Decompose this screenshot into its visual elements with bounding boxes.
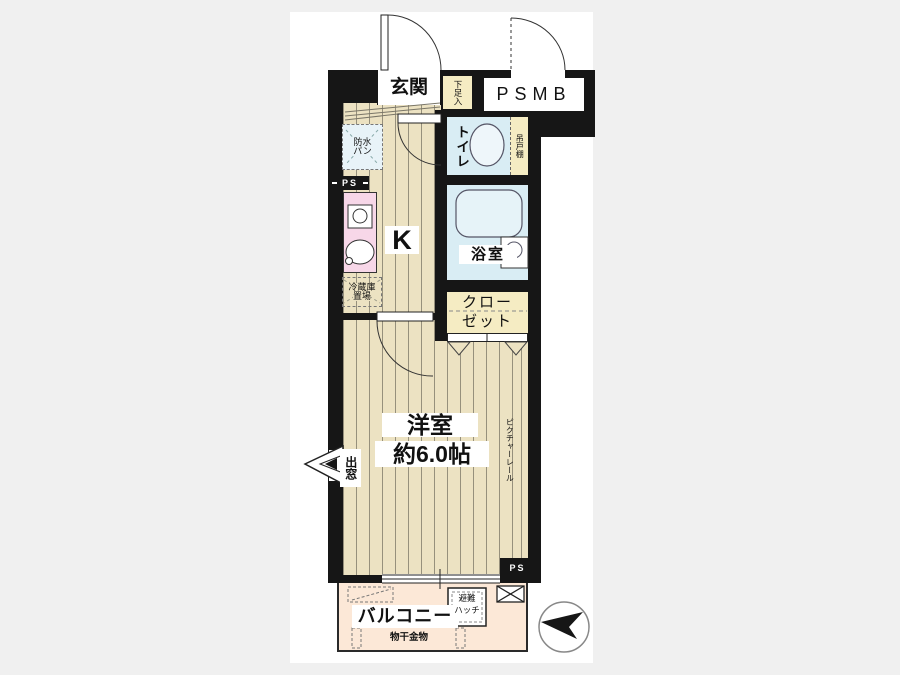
wall-mid-vertical	[435, 110, 447, 341]
kitchen-counter	[343, 192, 377, 273]
wall-k-room-left	[328, 313, 377, 320]
label-waterproof-pan: 防水 パン	[343, 133, 382, 161]
label-kitchen: K	[385, 226, 419, 254]
label-closet-line2: ゼット	[447, 313, 528, 330]
label-fridge-space: 冷蔵庫 置場	[343, 280, 381, 304]
label-bath: 浴室	[459, 245, 517, 264]
kitchen-floor	[343, 103, 441, 577]
label-hatch-line1: 避難	[449, 593, 485, 604]
bath-floor	[447, 185, 528, 280]
wall-bottom-left	[328, 575, 382, 583]
label-fridge-line2: 置場	[353, 292, 371, 301]
label-psmb: PSMB	[484, 80, 584, 108]
wall-left	[328, 70, 343, 583]
label-genkan: 玄関	[378, 76, 440, 100]
label-shoe-box: 下足入	[443, 77, 472, 108]
label-laundry-fitting: 物干金物	[384, 632, 434, 644]
label-hanging-shelf: 吊戸棚	[511, 121, 527, 171]
label-closet-line1: クロー	[447, 294, 528, 311]
label-ps-bottom: PS	[504, 562, 531, 575]
closet-door-track	[447, 333, 528, 342]
label-bay-window: 出窓	[340, 449, 361, 487]
label-room-line1: 洋室	[382, 413, 478, 437]
wall-k-room-right	[433, 313, 447, 320]
label-waterproof-line2: パン	[353, 147, 371, 156]
ps-left-label: PS	[342, 178, 358, 188]
label-toilet: トイレ	[452, 119, 470, 175]
ps-tab-left: PS	[331, 176, 369, 190]
wall-bath-closet	[441, 280, 540, 292]
floorplan: PS	[0, 0, 900, 675]
label-hatch-line2: ハッチ	[449, 605, 485, 616]
label-balcony: バルコニー	[352, 605, 458, 628]
label-room-line2: 約6.0帖	[375, 441, 489, 467]
label-picture-rail: ピクチャーレール	[502, 410, 516, 490]
wall-toilet-bath	[441, 175, 528, 185]
wall-right-main	[528, 117, 541, 583]
